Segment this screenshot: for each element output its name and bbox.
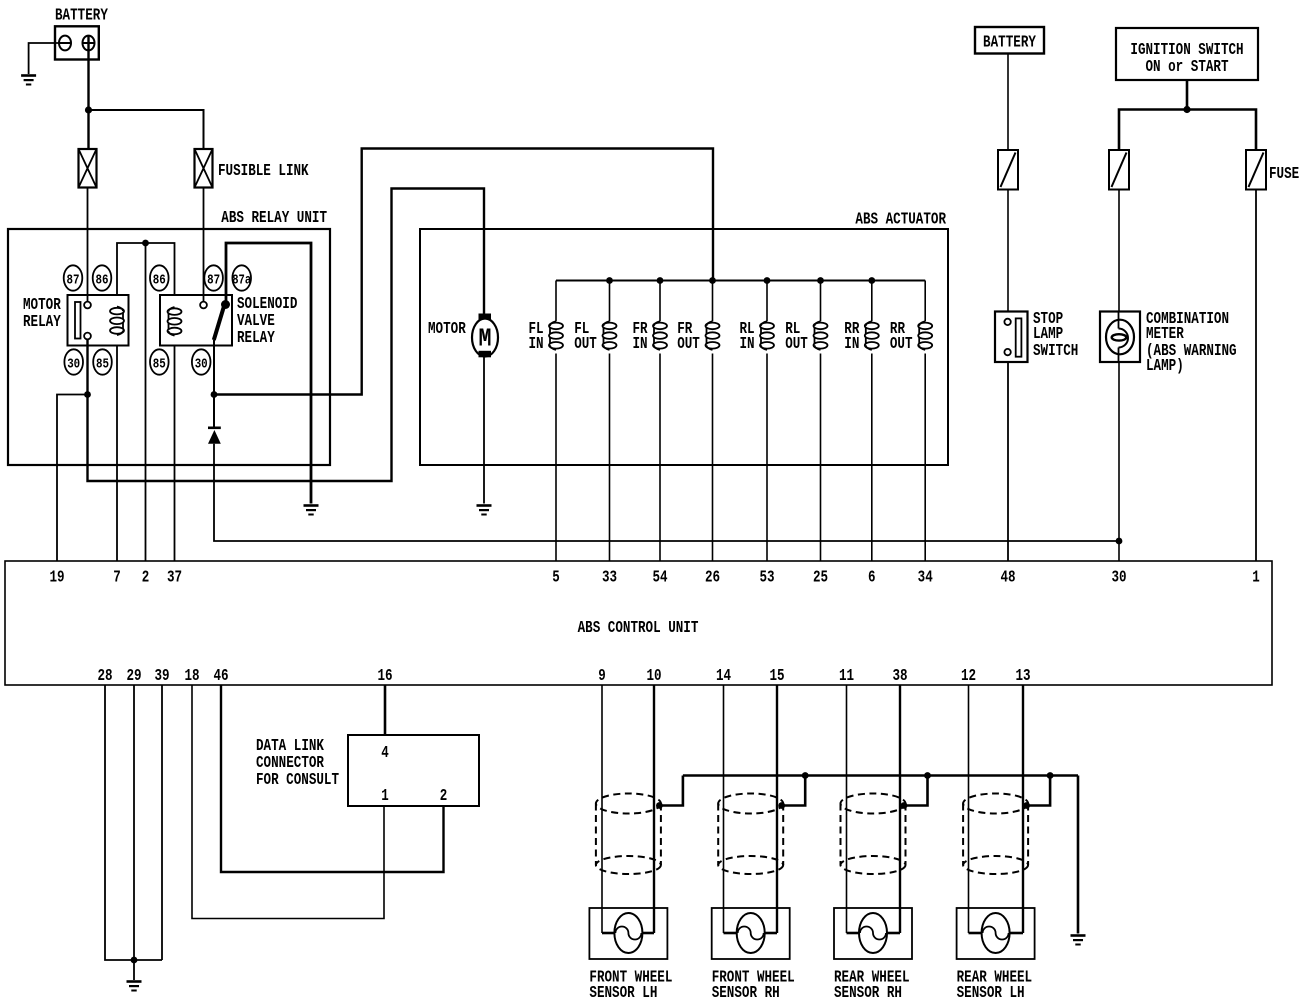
svg-text:6: 6 [868,569,876,588]
svg-text:OUT: OUT [890,335,913,354]
svg-text:46: 46 [213,667,228,686]
svg-text:FOR CONSULT: FOR CONSULT [256,771,339,790]
svg-text:13: 13 [1015,667,1030,686]
svg-text:30: 30 [195,357,208,373]
svg-text:87: 87 [207,273,220,289]
svg-text:BATTERY: BATTERY [55,7,108,26]
svg-text:IN: IN [844,335,859,354]
svg-text:29: 29 [126,667,141,686]
svg-text:ABS RELAY UNIT: ABS RELAY UNIT [221,209,327,228]
svg-text:FUSIBLE LINK: FUSIBLE LINK [218,162,309,181]
svg-text:SENSOR RH: SENSOR RH [834,984,902,1003]
svg-text:1: 1 [381,787,389,806]
svg-text:39: 39 [154,667,169,686]
svg-text:SENSOR LH: SENSOR LH [589,984,657,1003]
svg-text:SENSOR LH: SENSOR LH [957,984,1025,1003]
svg-text:34: 34 [918,569,933,588]
svg-text:RELAY: RELAY [237,329,275,348]
svg-text:30: 30 [1111,569,1126,588]
svg-text:85: 85 [153,357,166,373]
svg-text:M: M [479,324,492,354]
svg-text:12: 12 [961,667,976,686]
svg-text:16: 16 [377,667,392,686]
svg-text:FUSE: FUSE [1269,165,1299,184]
svg-text:26: 26 [705,569,720,588]
svg-text:38: 38 [892,667,907,686]
svg-text:RELAY: RELAY [23,313,61,332]
svg-text:10: 10 [646,667,661,686]
svg-text:11: 11 [839,667,854,686]
svg-text:IN: IN [633,335,648,354]
svg-text:4: 4 [381,744,389,763]
svg-text:5: 5 [552,569,560,588]
svg-text:33: 33 [602,569,617,588]
svg-text:1: 1 [1252,569,1260,588]
svg-text:OUT: OUT [785,335,808,354]
svg-text:BATTERY: BATTERY [983,34,1036,53]
svg-text:IN: IN [740,335,755,354]
svg-text:19: 19 [49,569,64,588]
svg-text:2: 2 [142,569,150,588]
svg-text:SWITCH: SWITCH [1033,342,1078,361]
svg-text:25: 25 [813,569,828,588]
svg-text:18: 18 [184,667,199,686]
svg-text:15: 15 [769,667,784,686]
svg-text:30: 30 [67,357,80,373]
svg-text:48: 48 [1000,569,1015,588]
svg-text:MOTOR: MOTOR [428,320,466,339]
svg-text:OUT: OUT [677,335,700,354]
svg-text:ON or START: ON or START [1146,58,1229,77]
svg-text:85: 85 [96,357,109,373]
svg-text:86: 86 [96,273,109,289]
svg-text:53: 53 [759,569,774,588]
svg-text:54: 54 [652,569,667,588]
svg-text:86: 86 [153,273,166,289]
svg-text:9: 9 [598,667,606,686]
svg-text:37: 37 [167,569,182,588]
svg-text:28: 28 [97,667,112,686]
svg-text:OUT: OUT [574,335,597,354]
svg-text:2: 2 [440,787,448,806]
svg-text:ABS CONTROL UNIT: ABS CONTROL UNIT [578,619,699,638]
svg-text:ABS ACTUATOR: ABS ACTUATOR [855,211,946,230]
svg-text:IN: IN [529,335,544,354]
svg-text:SENSOR RH: SENSOR RH [712,984,780,1003]
svg-text:87: 87 [67,273,80,289]
svg-text:LAMP): LAMP) [1146,357,1184,376]
svg-text:7: 7 [113,569,121,588]
svg-text:14: 14 [716,667,731,686]
svg-text:87a: 87a [232,273,251,289]
